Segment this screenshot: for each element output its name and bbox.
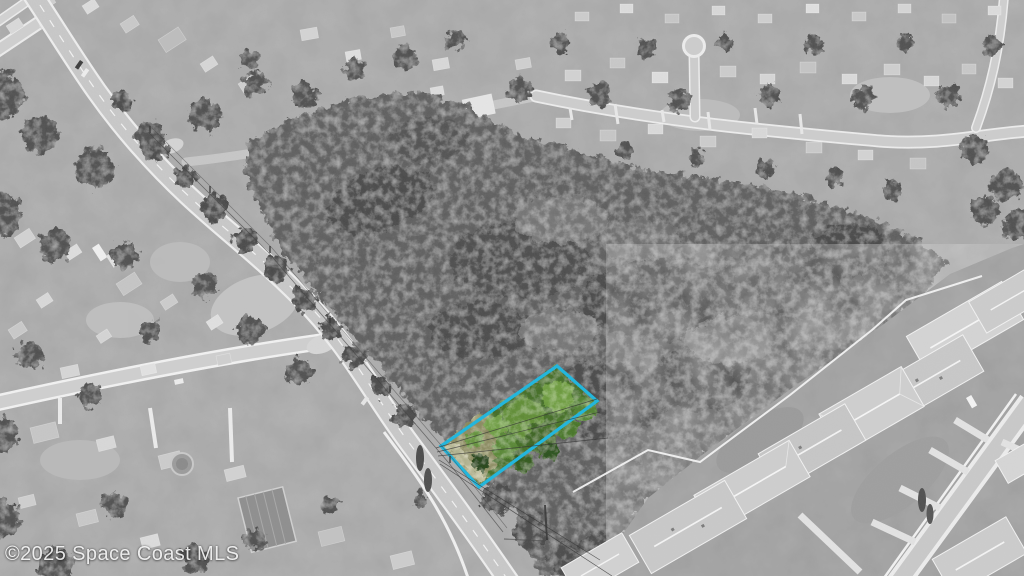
aerial-photo: ©2025 Space Coast MLS (0, 0, 1024, 576)
aerial-photo-canvas (0, 0, 1024, 576)
photo-grain-overlay (0, 0, 1024, 576)
watermark: ©2025 Space Coast MLS (5, 543, 239, 566)
